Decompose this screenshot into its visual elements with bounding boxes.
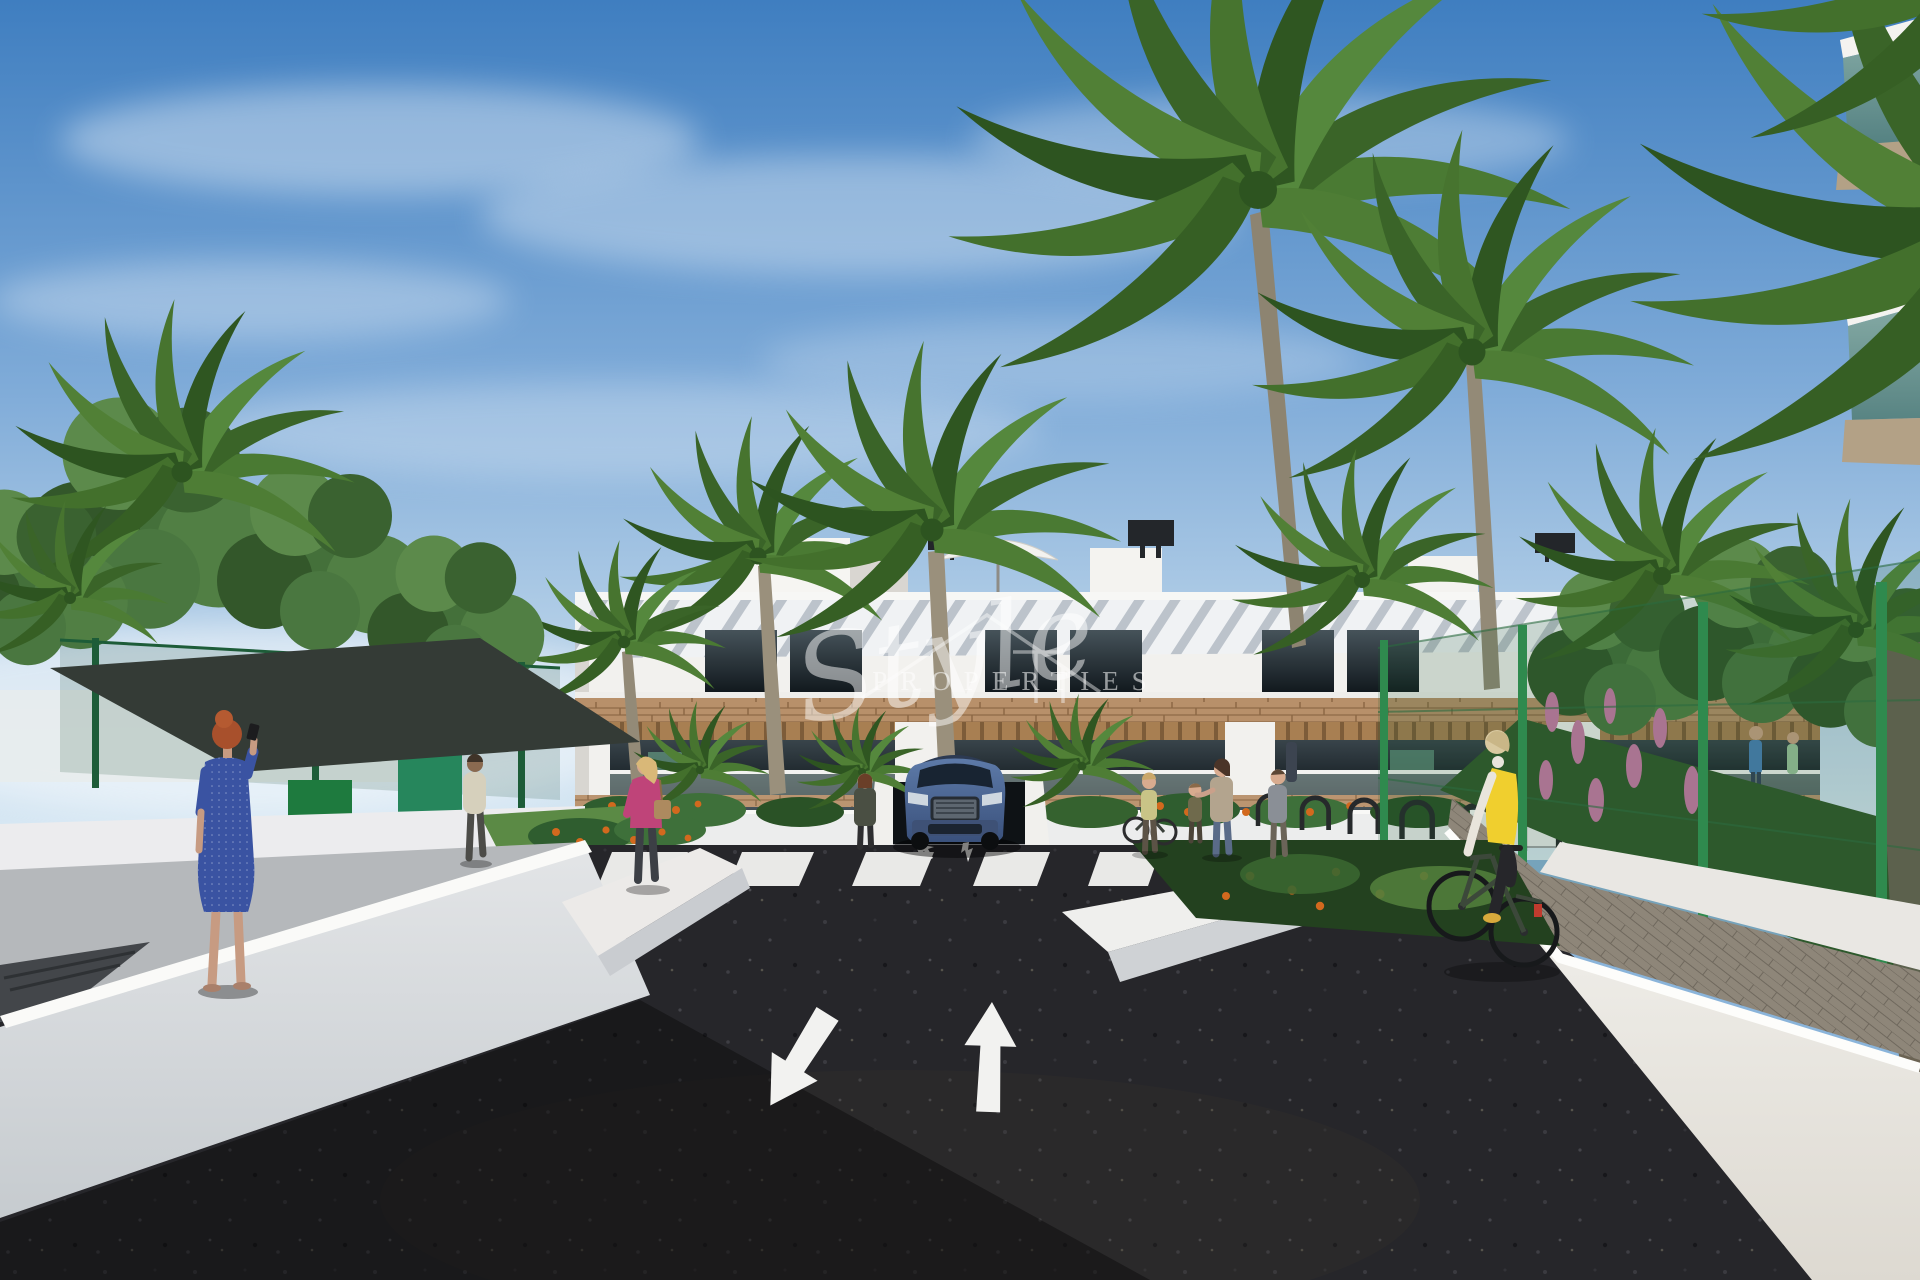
street: [0, 798, 1920, 1280]
watermark-caps-text: PROPERTIES: [872, 666, 1159, 696]
balcony-person: [1286, 742, 1297, 782]
render-canvas: Style PROPERTIES: [0, 0, 1920, 1280]
architectural-render: Style PROPERTIES: [0, 0, 1920, 1280]
rear-reflector: [1534, 904, 1542, 917]
handbag: [654, 800, 671, 819]
